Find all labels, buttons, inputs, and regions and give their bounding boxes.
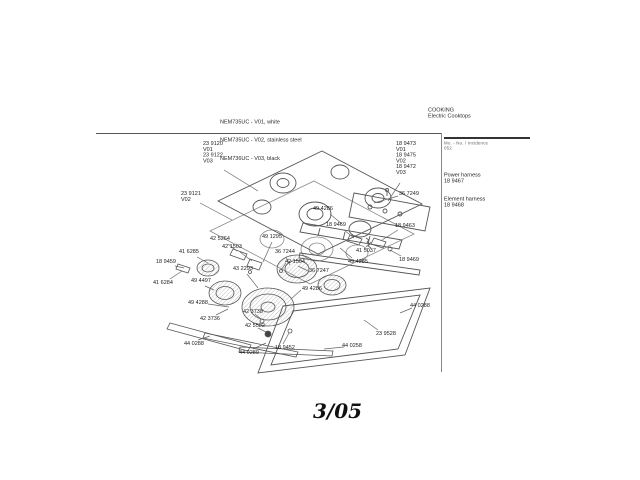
part-label: 18 9473 V01 18 9475 V02 18 9472 V03 [396, 141, 416, 176]
part-label: 42 3736 [200, 316, 220, 322]
part-label: 44 0288 [184, 341, 204, 347]
part-label: 36 7249 [399, 191, 419, 197]
part-label: 49 4285 [348, 259, 368, 265]
part-label: 18 9452 [275, 345, 295, 351]
part-label: 23 9121 V02 [181, 191, 201, 203]
part-label: 41 6285 [179, 249, 199, 255]
part-label: 23 9120 V01 23 9122 V03 [203, 141, 223, 164]
part-label: 49 4286 [313, 206, 333, 212]
part-label: 44 0258 [342, 343, 362, 349]
part-label: 49 4286 [302, 286, 322, 292]
part-label: 18 9459 [156, 259, 176, 265]
part-label: 42 1504 [285, 259, 305, 265]
part-label: 18 9469 [399, 257, 419, 263]
part-label: 49 4288 [188, 300, 208, 306]
part-label: 49 1295 [262, 234, 282, 240]
parts-diagram-page: NEM735UC - V01, white NEM735UC - V02, st… [0, 0, 640, 480]
part-label: 36 7247 [309, 268, 329, 274]
part-label: 41 5037 [356, 248, 376, 254]
part-label: 42 5582 [245, 323, 265, 329]
part-label: 43 2293 [233, 266, 253, 272]
part-label: 36 7244 [275, 249, 295, 255]
part-label: 42 5264 [210, 236, 230, 242]
part-label: 41 6284 [153, 280, 173, 286]
part-label: 49 4497 [191, 278, 211, 284]
revision-date: 3/05 [313, 399, 362, 423]
part-label: 44 0289 [239, 350, 259, 356]
part-label: 18 9463 [395, 223, 415, 229]
part-label: 23 9528 [376, 331, 396, 337]
part-label: 44 0288 [410, 303, 430, 309]
part-label: 42 3738 [243, 309, 263, 315]
part-label: 18 9469 [326, 222, 346, 228]
part-label: 42 1503 [222, 244, 242, 250]
